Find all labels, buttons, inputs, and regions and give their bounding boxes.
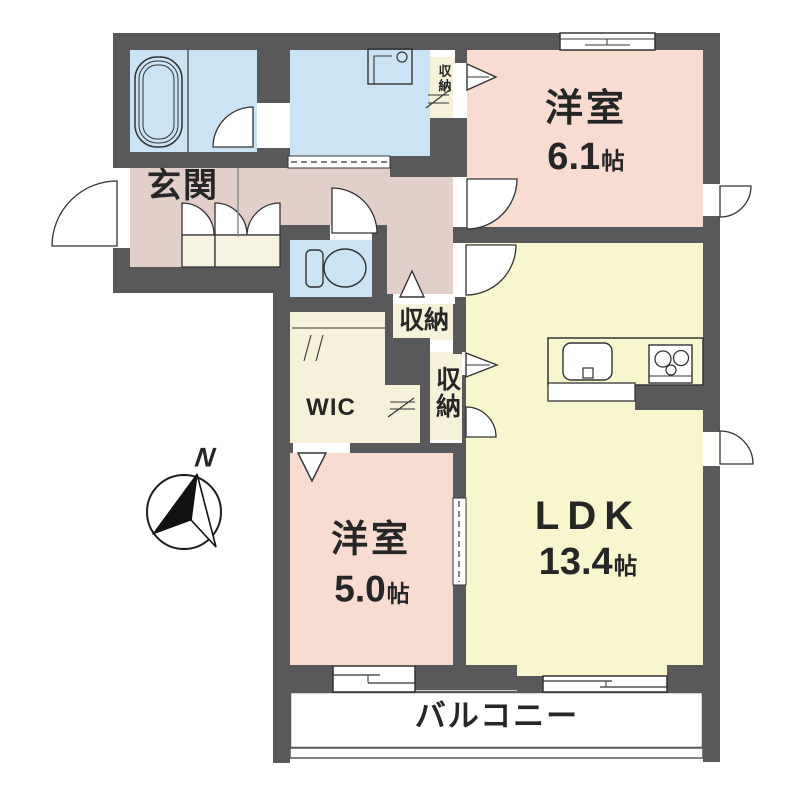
ldk-floor [466, 243, 703, 677]
ldk-size-value: 13.4 [539, 543, 613, 581]
wic-floor [290, 312, 385, 443]
ldk-east-door-swing [720, 431, 753, 464]
storage-hall-label: 収納 [399, 309, 449, 334]
bedroom2-ldk-sliding-door [453, 498, 466, 585]
wic-floor-ext [385, 385, 420, 443]
bedroom2-size-unit: 帖 [387, 583, 410, 606]
ldk-bottom-window [543, 676, 667, 692]
compass-north-label: N [193, 445, 216, 472]
ldk-size-unit: 帖 [614, 555, 638, 579]
compass-north-icon [147, 474, 221, 549]
gas-stove-icon [649, 345, 692, 383]
bedroom2-bottom-window [333, 666, 415, 692]
bedroom1-size: 6.1帖 [547, 138, 624, 176]
bedroom1-size-value: 6.1 [547, 138, 600, 176]
floorplan: 玄関 洋室 6.1帖 LDK 13.4帖 洋室 5.0帖 WIC 収納 収納 収… [0, 0, 800, 800]
ldk-size: 13.4帖 [539, 543, 638, 581]
toilet-floor [290, 240, 372, 297]
bedroom2-size-value: 5.0 [334, 571, 385, 608]
wic-label: WIC [306, 396, 356, 420]
bedroom1-size-unit: 帖 [601, 150, 625, 174]
ldk-label: LDK [535, 496, 641, 536]
bedroom1-label: 洋室 [545, 90, 627, 128]
corridor-floor [387, 225, 453, 296]
balcony-label: バルコニー [415, 701, 579, 732]
bedroom1-east-door-swing [720, 186, 751, 217]
bedroom1-top-window [560, 33, 655, 50]
kitchen-sink-icon [563, 343, 612, 380]
storage-upper-label: 収納 [438, 64, 451, 94]
shoe-cabinet-icon [182, 203, 280, 267]
bedroom2-size: 5.0帖 [334, 571, 409, 608]
washroom-sliding-door [288, 156, 390, 168]
front-door-swing [52, 181, 117, 246]
washroom-floor [290, 50, 430, 160]
floorplan-canvas [0, 0, 800, 800]
bedroom2-label: 洋室 [331, 521, 411, 558]
entrance-label: 玄関 [147, 169, 219, 203]
bedroom2-floor [290, 453, 453, 667]
storage-ldk-label: 収納 [434, 366, 459, 420]
